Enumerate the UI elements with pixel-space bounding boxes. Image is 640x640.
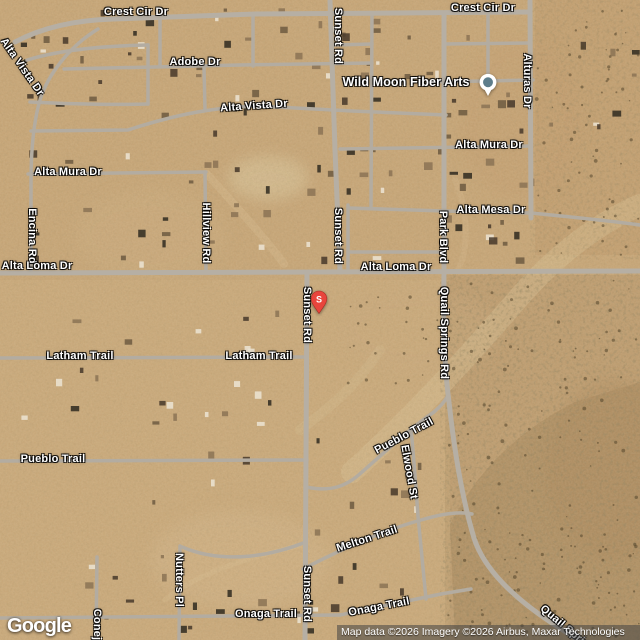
poi-marker[interactable] bbox=[477, 72, 499, 103]
google-logo[interactable]: Google bbox=[7, 615, 71, 638]
attribution-text: Map data ©2026 Imagery ©2026 Airbus, Max… bbox=[341, 626, 625, 638]
selected-location-marker[interactable]: S bbox=[310, 290, 328, 321]
marker-letter: S bbox=[316, 294, 322, 304]
map-canvas[interactable]: Crest Cir Dr Crest Cir Dr Alta Vista Dr … bbox=[0, 0, 640, 640]
map-attribution: Map data ©2026 Imagery ©2026 Airbus, Max… bbox=[337, 625, 640, 640]
